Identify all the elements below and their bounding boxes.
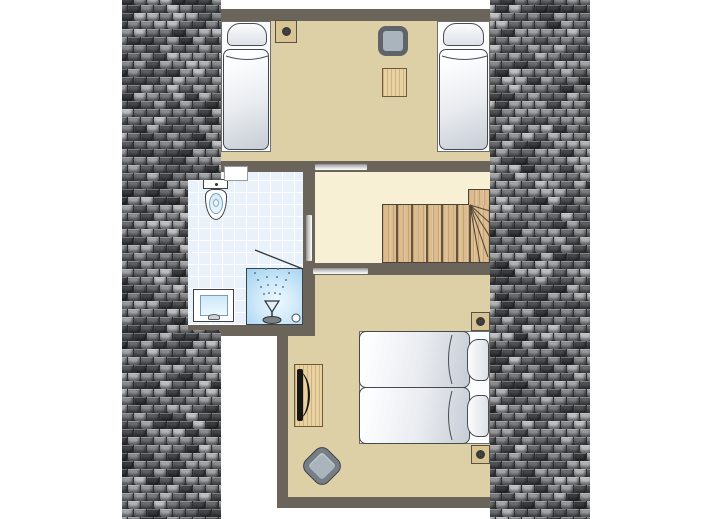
roof-tile: [554, 45, 566, 53]
roof-tile: [587, 85, 590, 93]
roof-tile: [180, 85, 192, 93]
roof-tile: [509, 229, 521, 237]
roof-tile: [122, 365, 133, 373]
roof-tile: [567, 29, 579, 37]
roof-tile: [522, 469, 534, 477]
roof-tile: [554, 301, 566, 309]
roof-tile: [199, 493, 211, 501]
roof-tile: [541, 381, 553, 389]
roof-tile: [154, 357, 166, 365]
roof-tile: [541, 237, 553, 245]
roof-tile: [167, 437, 179, 445]
roof-tile: [134, 45, 146, 53]
roof-tile: [502, 205, 514, 213]
roof-tile: [180, 437, 192, 445]
roof-tile: [122, 389, 127, 397]
roof-tile: [502, 317, 514, 325]
roof-tile: [548, 37, 560, 45]
roof-tile: [167, 357, 179, 365]
single-bed-right-pillow: [443, 23, 484, 46]
roof-tile: [574, 69, 586, 77]
roof-tile: [154, 37, 166, 45]
roof-tile: [134, 509, 146, 517]
roof-tile: [134, 269, 146, 277]
roof-tile: [528, 333, 540, 341]
roof-tile: [122, 301, 133, 309]
roof-tile: [535, 421, 547, 429]
roof-tile: [509, 437, 521, 445]
roof-tile: [528, 173, 540, 181]
roof-tile: [554, 285, 566, 293]
roof-tile: [490, 21, 495, 29]
roof-tile: [554, 413, 566, 421]
roof-tile: [561, 277, 573, 285]
roof-tile: [128, 501, 140, 509]
spotlight-icon: [476, 450, 485, 459]
roof-tile: [154, 101, 166, 109]
roof-tile: [580, 173, 590, 181]
roof-tile: [141, 53, 153, 61]
roof-tile: [567, 445, 579, 453]
roof-tile: [134, 221, 146, 229]
roof-tile: [490, 445, 501, 453]
roof-tile: [134, 493, 146, 501]
roof-tile: [567, 157, 579, 165]
roof-tile: [490, 85, 495, 93]
roof-tile: [535, 405, 547, 413]
roof-tile: [509, 53, 521, 61]
roof-tile: [122, 293, 127, 301]
roof-tile: [160, 109, 172, 117]
roof-tile: [490, 229, 495, 237]
roof-tile: [206, 453, 218, 461]
roof-tile: [128, 21, 140, 29]
roof-tile: [580, 461, 590, 469]
roof-tile: [167, 165, 179, 173]
roof-tile: [141, 389, 153, 397]
roof-tile: [574, 101, 586, 109]
roof-tile: [561, 5, 573, 13]
roof-tile: [134, 237, 146, 245]
roof-tile: [554, 173, 566, 181]
roof-tile: [535, 245, 547, 253]
roof-tile: [199, 333, 211, 341]
stair-tread-line: [411, 205, 413, 262]
roof-tile: [509, 165, 521, 173]
roof-tile: [167, 181, 179, 189]
roof-tile: [180, 21, 192, 29]
roof-tile: [509, 469, 521, 477]
roof-tile: [496, 229, 508, 237]
roof-tile: [147, 413, 159, 421]
roof-tile: [154, 453, 166, 461]
roof-tile: [490, 117, 495, 125]
roof-tile: [574, 293, 586, 301]
roof-tile: [122, 45, 133, 53]
roof-tile: [541, 29, 553, 37]
roof-tile: [548, 277, 560, 285]
roof-tile: [554, 109, 566, 117]
roof-tile: [554, 189, 566, 197]
roof-tile: [122, 309, 127, 317]
roof-tile: [515, 157, 527, 165]
roof-tile: [490, 397, 501, 405]
roof-tile: [496, 117, 508, 125]
roof-tile: [496, 261, 508, 269]
roof-tile: [574, 485, 586, 493]
roof-tile: [128, 309, 140, 317]
roof-tile: [490, 333, 501, 341]
roof-tile: [548, 229, 560, 237]
roof-tile: [554, 461, 566, 469]
roof-tile: [509, 293, 521, 301]
roof-tile: [173, 45, 185, 53]
roof-tile: [580, 477, 590, 485]
roof-tile: [193, 165, 205, 173]
roof-tile: [167, 261, 179, 269]
roof-tile: [154, 181, 166, 189]
wall-bedroom-bottom-left: [277, 325, 288, 508]
roof-tile: [561, 85, 573, 93]
roof-tile: [122, 5, 127, 13]
roof-tile: [490, 381, 501, 389]
door-bathroom-side: [306, 215, 312, 261]
roof-tile: [502, 461, 514, 469]
roof-tile: [173, 397, 185, 405]
roof-tile: [122, 277, 127, 285]
roof-tile: [193, 453, 205, 461]
roof-tile: [567, 173, 579, 181]
roof-tile: [186, 173, 198, 181]
roof-tile: [160, 413, 172, 421]
roof-tile: [128, 341, 140, 349]
roof-tile: [541, 317, 553, 325]
washbasin-faucet: [208, 314, 220, 320]
roof-tile: [212, 509, 221, 517]
roof-tile: [515, 477, 527, 485]
roof-tile: [160, 333, 172, 341]
roof-tile: [561, 485, 573, 493]
roof-tile: [574, 453, 586, 461]
roof-tile: [496, 197, 508, 205]
roof-tile: [122, 101, 127, 109]
roof-tile: [134, 285, 146, 293]
roof-tile: [128, 453, 140, 461]
roof-tile: [587, 229, 590, 237]
roof-tile: [509, 101, 521, 109]
roof-tile: [587, 405, 590, 413]
roof-tile: [490, 125, 501, 133]
roof-tile: [167, 37, 179, 45]
roof-tile: [206, 421, 218, 429]
roof-tile: [154, 261, 166, 269]
roof-tile: [160, 493, 172, 501]
roof-tile: [141, 245, 153, 253]
roof-tile: [561, 325, 573, 333]
roof-tile: [147, 429, 159, 437]
roof-tile: [154, 85, 166, 93]
roof-tile: [219, 117, 221, 125]
roof-tile: [219, 149, 221, 157]
spotlight-icon: [476, 317, 485, 326]
roof-tile: [160, 317, 172, 325]
roof-tile: [502, 301, 514, 309]
roof-tile: [160, 77, 172, 85]
roof-tile: [580, 397, 590, 405]
roof-tile: [574, 309, 586, 317]
roof-tile: [147, 189, 159, 197]
roof-tile: [535, 69, 547, 77]
roof-tile: [515, 461, 527, 469]
roof-tile: [554, 253, 566, 261]
roof-tile: [206, 21, 218, 29]
roof-tile: [574, 277, 586, 285]
roof-tile: [528, 445, 540, 453]
roof-tile: [134, 477, 146, 485]
roof-tile: [490, 205, 501, 213]
roof-tile: [154, 485, 166, 493]
roof-strip-right: [490, 0, 590, 519]
roof-tile: [160, 205, 172, 213]
roof-tile: [515, 317, 527, 325]
roof-tile: [219, 53, 221, 61]
roof-tile: [541, 269, 553, 277]
roof-tile: [587, 53, 590, 61]
roof-tile: [509, 453, 521, 461]
floor-plan: [0, 0, 713, 519]
roof-tile: [496, 37, 508, 45]
roof-tile: [528, 205, 540, 213]
roof-tile: [548, 485, 560, 493]
roof-tile: [128, 85, 140, 93]
roof-tile: [141, 117, 153, 125]
roof-tile: [535, 117, 547, 125]
roof-tile: [167, 325, 179, 333]
roof-tile: [574, 341, 586, 349]
roof-tile: [180, 69, 192, 77]
roof-tile: [580, 221, 590, 229]
roof-tile: [490, 341, 495, 349]
roof-tile: [490, 413, 501, 421]
roof-tile: [541, 125, 553, 133]
roof-tile: [528, 29, 540, 37]
roof-tile: [186, 13, 198, 21]
roof-tile: [541, 205, 553, 213]
roof-tile: [541, 509, 553, 517]
roof-tile: [548, 101, 560, 109]
roof-tile: [502, 477, 514, 485]
roof-tile: [122, 397, 133, 405]
roof-tile: [574, 213, 586, 221]
roof-tile: [580, 77, 590, 85]
roof-tile: [206, 37, 218, 45]
roof-tile: [490, 141, 501, 149]
roof-tile: [219, 501, 221, 509]
roof-tile: [502, 173, 514, 181]
roof-tile: [147, 317, 159, 325]
roof-tile: [212, 381, 221, 389]
roof-tile: [167, 373, 179, 381]
roof-tile: [548, 293, 560, 301]
roof-tile: [502, 109, 514, 117]
roof-tile: [580, 365, 590, 373]
roof-tile: [180, 341, 192, 349]
single-bed-left-mattress: [223, 49, 269, 150]
roof-tile: [147, 29, 159, 37]
roof-tile: [580, 205, 590, 213]
roof-tile: [199, 429, 211, 437]
roof-tile: [509, 181, 521, 189]
roof-tile: [206, 101, 218, 109]
roof-tile: [490, 165, 495, 173]
roof-tile: [490, 461, 501, 469]
roof-tile: [147, 237, 159, 245]
roof-tile: [122, 69, 127, 77]
roof-tile: [134, 445, 146, 453]
roof-tile: [141, 405, 153, 413]
roof-tile: [193, 133, 205, 141]
roof-tile: [141, 101, 153, 109]
roof-tile: [561, 389, 573, 397]
roof-tile: [199, 45, 211, 53]
roof-tile: [212, 13, 221, 21]
roof-tile: [509, 277, 521, 285]
roof-tile: [180, 133, 192, 141]
roof-tile: [587, 21, 590, 29]
roof-tile: [541, 349, 553, 357]
roof-tile: [160, 477, 172, 485]
roof-tile: [206, 469, 218, 477]
roof-tile: [199, 509, 211, 517]
roof-tile: [574, 229, 586, 237]
roof-tile: [141, 5, 153, 13]
roof-tile: [490, 453, 495, 461]
roof-tile: [219, 69, 221, 77]
roof-tile: [206, 373, 218, 381]
roof-tile: [219, 357, 221, 365]
roof-tile: [147, 285, 159, 293]
cistern-button: [215, 183, 218, 186]
roof-tile: [528, 189, 540, 197]
roof-tile: [502, 349, 514, 357]
roof-tile: [535, 165, 547, 173]
roof-tile: [548, 245, 560, 253]
roof-tile: [587, 213, 590, 221]
roof-tile: [180, 485, 192, 493]
roof-tile: [580, 413, 590, 421]
roof-tile: [490, 45, 501, 53]
roof-tile: [522, 53, 534, 61]
roof-tile: [122, 317, 133, 325]
roof-tile: [548, 437, 560, 445]
roof-tile: [160, 349, 172, 357]
roof-tile: [561, 357, 573, 365]
roof-tile: [502, 269, 514, 277]
roof-tile: [173, 413, 185, 421]
roof-tile: [528, 13, 540, 21]
roof-tile: [522, 197, 534, 205]
roof-tile: [561, 453, 573, 461]
roof-tile: [167, 501, 179, 509]
roof-tile: [154, 245, 166, 253]
roof-tile: [199, 381, 211, 389]
roof-tile: [528, 221, 540, 229]
roof-tile: [502, 237, 514, 245]
roof-tile: [561, 261, 573, 269]
roof-tile: [160, 429, 172, 437]
roof-tile: [122, 213, 127, 221]
roof-tile: [548, 453, 560, 461]
roof-tile: [186, 413, 198, 421]
roof-tile: [122, 349, 133, 357]
roof-tile: [490, 53, 495, 61]
roof-tile: [548, 469, 560, 477]
roof-tile: [541, 109, 553, 117]
roof-tile: [212, 429, 221, 437]
roof-tile: [587, 165, 590, 173]
roof-tile: [574, 325, 586, 333]
roof-tile: [541, 221, 553, 229]
roof-tile: [206, 133, 218, 141]
roof-tile: [522, 373, 534, 381]
roof-tile: [122, 181, 127, 189]
roof-tile: [490, 13, 501, 21]
roof-tile: [122, 269, 133, 277]
roof-tile: [522, 181, 534, 189]
twin-bed-lower-pillow: [467, 395, 489, 437]
roof-tile: [212, 173, 221, 181]
roof-tile: [535, 325, 547, 333]
roof-tile: [587, 69, 590, 77]
roof-tile: [561, 149, 573, 157]
roof-tile: [180, 469, 192, 477]
roof-tile: [574, 117, 586, 125]
roof-tile: [134, 141, 146, 149]
roof-tile: [515, 221, 527, 229]
roof-tile: [541, 477, 553, 485]
roof-tile: [515, 397, 527, 405]
roof-tile: [580, 141, 590, 149]
roof-tile: [180, 421, 192, 429]
roof-tile: [219, 389, 221, 397]
roof-tile: [509, 325, 521, 333]
roof-tile: [167, 69, 179, 77]
roof-tile: [193, 149, 205, 157]
roof-tile: [141, 501, 153, 509]
roof-tile: [580, 349, 590, 357]
roof-tile: [134, 349, 146, 357]
ceiling-spotlight-bottom-a: [471, 312, 490, 331]
roof-tile: [561, 341, 573, 349]
roof-tile: [561, 37, 573, 45]
roof-tile: [147, 77, 159, 85]
roof-tile: [587, 197, 590, 205]
roof-tile: [522, 21, 534, 29]
roof-tile: [502, 93, 514, 101]
roof-tile: [147, 173, 159, 181]
roof-tile: [496, 149, 508, 157]
roof-tile: [522, 165, 534, 173]
roof-tile: [212, 93, 221, 101]
roof-tile: [128, 437, 140, 445]
roof-tile: [528, 77, 540, 85]
roof-tile: [134, 29, 146, 37]
roof-tile: [541, 429, 553, 437]
roof-tile: [515, 125, 527, 133]
roof-tile: [128, 5, 140, 13]
roof-tile: [548, 325, 560, 333]
roof-tile: [167, 485, 179, 493]
